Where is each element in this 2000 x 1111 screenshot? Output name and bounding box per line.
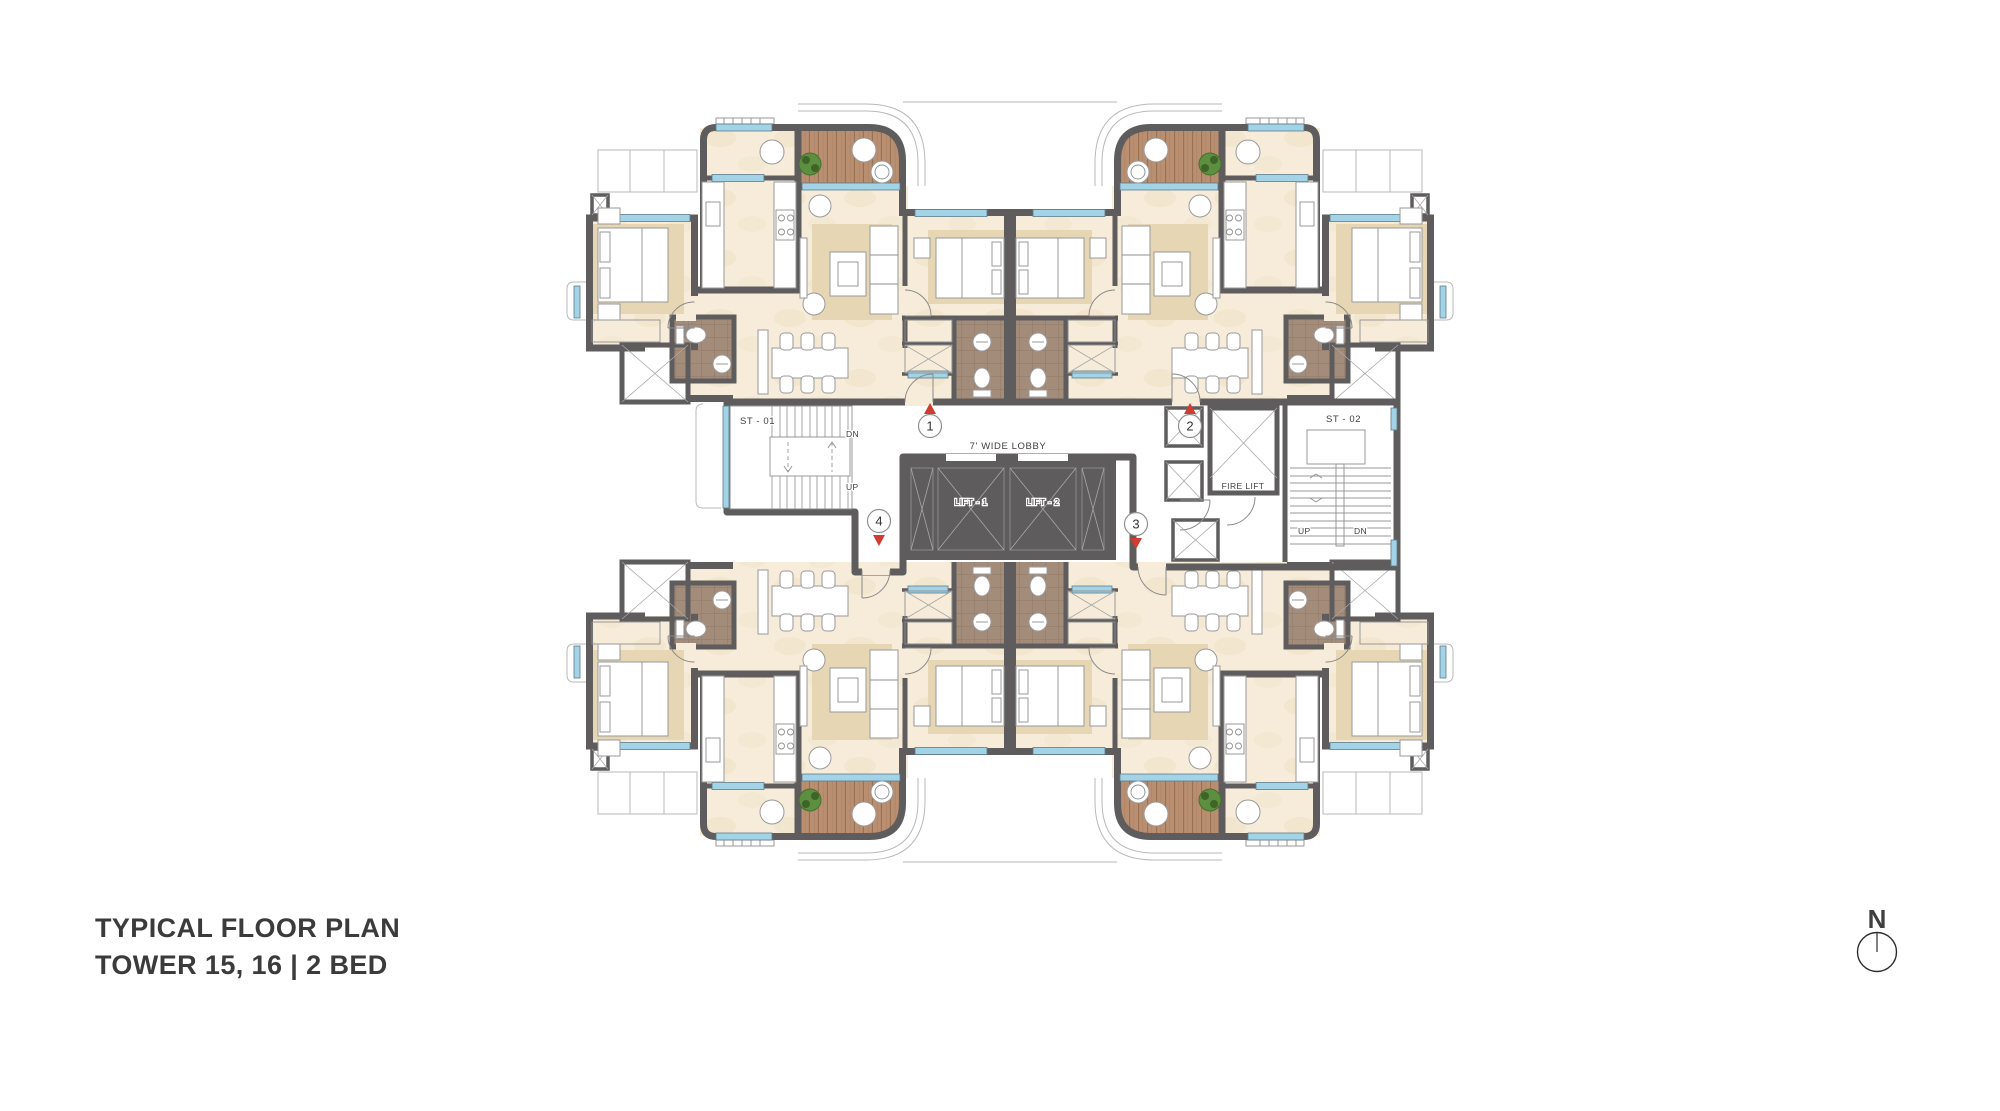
unit-plan-3 bbox=[1009, 562, 1453, 862]
dining-chair bbox=[780, 333, 793, 350]
dining-chair bbox=[822, 333, 835, 350]
utility-basin bbox=[760, 140, 784, 164]
entry-arrow-down-icon bbox=[873, 535, 885, 546]
stair1-ledge bbox=[696, 404, 721, 508]
ac-ledge-window bbox=[574, 286, 580, 318]
north-letter: N bbox=[1868, 904, 1887, 934]
kitchen-counter-left bbox=[702, 182, 724, 288]
dining-chair bbox=[780, 376, 793, 393]
nightstand bbox=[598, 208, 620, 224]
stair2-window bbox=[1391, 540, 1397, 566]
coffee-table bbox=[830, 252, 866, 296]
bedroom2-window bbox=[915, 210, 987, 217]
lift-2-label: LIFT - 2 bbox=[1027, 497, 1060, 507]
stair1-label: ST - 01 bbox=[740, 416, 775, 427]
stair2-window bbox=[1391, 408, 1397, 430]
unit-1-number: 1 bbox=[926, 419, 933, 434]
nightstand bbox=[598, 304, 620, 320]
lift-core: LIFT - 1 LIFT - 2 bbox=[903, 454, 1116, 560]
lift-1-door bbox=[946, 454, 996, 461]
unit-plan-1 bbox=[567, 102, 1011, 402]
stair-st-02: ST - 02 UP DN bbox=[1285, 402, 1397, 566]
bedroom-window bbox=[613, 215, 690, 222]
floor-plan-page: ST - 01 DN UP ST - 02 UP DN bbox=[0, 0, 2000, 1111]
stair2-label: ST - 02 bbox=[1326, 414, 1361, 425]
lobby-door bbox=[1180, 500, 1210, 530]
toilet bbox=[686, 327, 706, 343]
unit-3-number: 3 bbox=[1132, 517, 1139, 532]
plan-title: TYPICAL FLOOR PLAN bbox=[95, 910, 400, 947]
unit-plan-4 bbox=[567, 562, 1011, 862]
utility-window bbox=[716, 124, 772, 131]
kitchen-counter-right bbox=[774, 182, 796, 288]
shoe-cabinet bbox=[758, 330, 768, 394]
kitchen-window bbox=[712, 175, 764, 182]
plan-subtitle: TOWER 15, 16 | 2 BED bbox=[95, 947, 400, 984]
unit-plan-2 bbox=[1009, 102, 1453, 402]
stair1-window bbox=[723, 406, 729, 508]
unit-2-number: 2 bbox=[1186, 419, 1193, 434]
toilet2 bbox=[974, 368, 990, 388]
stair2-dn-label: DN bbox=[1354, 526, 1367, 536]
lift-2-door bbox=[1018, 454, 1068, 461]
north-compass: N bbox=[1858, 904, 1897, 972]
balcony-table bbox=[852, 138, 876, 162]
tv-console bbox=[800, 238, 807, 298]
stair-st-01: ST - 01 DN UP bbox=[696, 404, 859, 509]
dining-chair bbox=[822, 376, 835, 393]
sofa bbox=[870, 226, 898, 314]
bathroom2-floor bbox=[954, 318, 1008, 402]
unit-4-number: 4 bbox=[875, 514, 882, 529]
stair1-up-label: UP bbox=[846, 482, 859, 492]
fire-lift-label: FIRE LIFT bbox=[1222, 481, 1265, 491]
lift-core-walls bbox=[903, 457, 1116, 560]
louver-vent bbox=[716, 118, 774, 124]
nightstand2 bbox=[914, 238, 930, 258]
dining-chair bbox=[801, 376, 814, 393]
balcony-window bbox=[802, 183, 900, 190]
title-block: TYPICAL FLOOR PLAN TOWER 15, 16 | 2 BED bbox=[95, 910, 400, 984]
lift-1-label: LIFT - 1 bbox=[955, 497, 988, 507]
plant bbox=[799, 153, 821, 175]
exterior-ledge bbox=[598, 150, 697, 192]
dining-table bbox=[772, 348, 848, 378]
lobby-label: 7' WIDE LOBBY bbox=[970, 441, 1047, 452]
lobby-door bbox=[1227, 497, 1255, 525]
stair2-up-label: UP bbox=[1298, 526, 1311, 536]
armchair bbox=[809, 195, 831, 217]
balcony-chair bbox=[871, 161, 893, 183]
dining-chair bbox=[801, 333, 814, 350]
stair1-dn-label: DN bbox=[846, 429, 859, 439]
